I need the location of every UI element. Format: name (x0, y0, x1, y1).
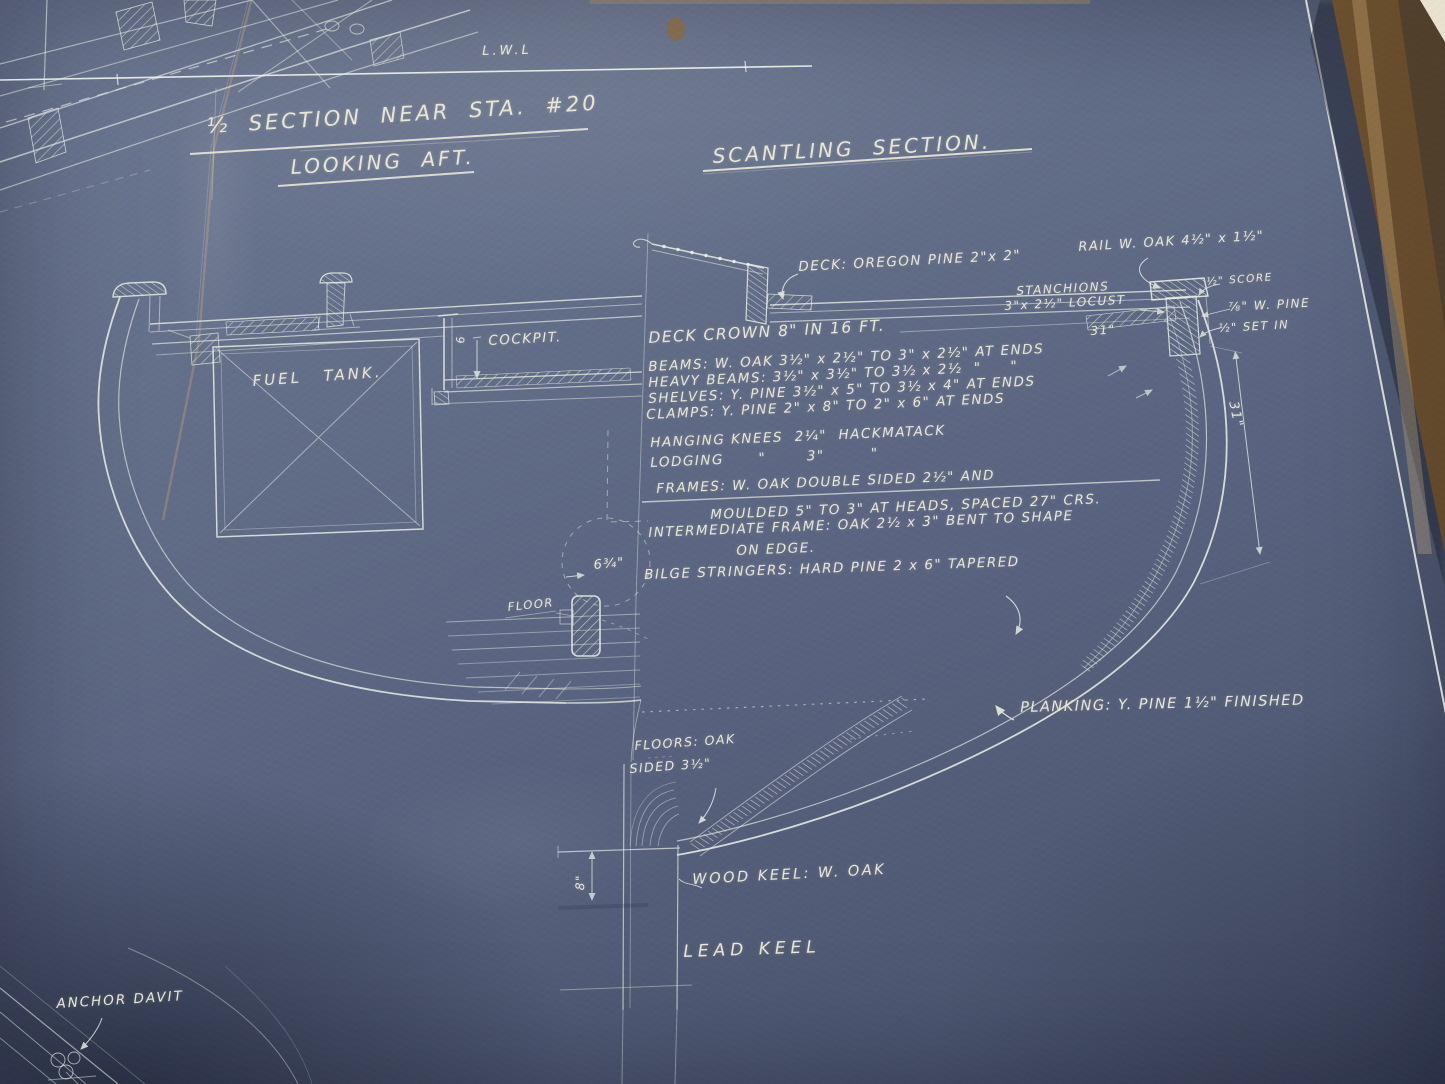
note-intermediate-2: ON EDGE. (736, 540, 816, 559)
label-cockpit-dim: 9 (453, 336, 467, 346)
label-bilge-dim: 6¾" (593, 555, 626, 573)
left-section-drawing (98, 233, 650, 760)
framed-blueprint-photo: ½ SECTION NEAR STA. #20 LOOKING AFT. SCA… (0, 0, 1445, 1084)
label-keel-depth-dim: 8" (573, 874, 588, 891)
bow-lines-davit (0, 948, 312, 1084)
label-deck-edge-dim: 31" (1090, 322, 1116, 338)
waterline-group (0, 61, 812, 85)
waterline-label: L.W.L (482, 43, 532, 59)
margin-border-line (1306, 0, 1445, 714)
